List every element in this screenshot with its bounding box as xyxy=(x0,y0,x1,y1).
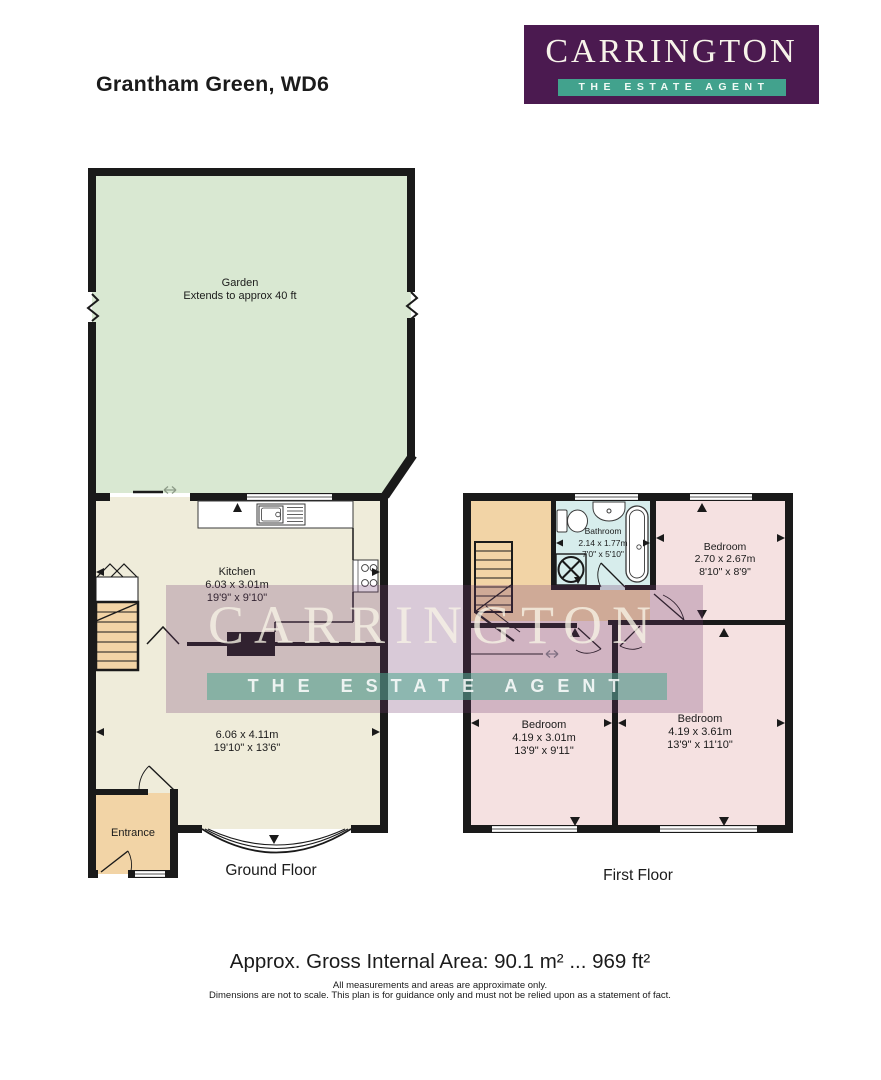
page-title: Grantham Green, WD6 xyxy=(96,72,329,97)
ground-floor-plan xyxy=(88,493,388,878)
room-name: Kitchen xyxy=(205,566,269,579)
window xyxy=(660,825,757,833)
bathroom-label: Bathroom 2.14 x 1.77m 7'0" x 5'10" xyxy=(578,526,627,561)
floor-plan-drawing xyxy=(0,0,881,1080)
bay-window-icon xyxy=(202,829,351,853)
room-size-metric: 4.19 x 3.01m xyxy=(512,732,576,745)
floorplan-page: { "page": { "title": "Grantham Green, WD… xyxy=(0,0,881,1080)
bedroom-right-label: Bedroom 4.19 x 3.61m 13'9" x 11'10" xyxy=(667,713,733,752)
room-name: Bedroom xyxy=(695,541,756,553)
ground-floor-caption: Ground Floor xyxy=(225,862,316,879)
logo-wordmark: CARRINGTON xyxy=(524,34,819,70)
room-size-metric: 2.70 x 2.67m xyxy=(695,553,756,565)
room-name: Bedroom xyxy=(512,719,576,732)
window xyxy=(135,870,165,878)
staircase-icon xyxy=(96,564,138,670)
garden-label: Garden Extends to approx 40 ft xyxy=(183,277,296,303)
window xyxy=(690,493,752,501)
room-name: Bathroom xyxy=(578,526,627,538)
room-size-imperial: 19'9" x 9'10" xyxy=(205,592,269,605)
room-size-imperial: 8'10" x 8'9" xyxy=(695,566,756,578)
garden-name: Garden xyxy=(183,277,296,290)
garden-note: Extends to approx 40 ft xyxy=(183,290,296,303)
room-size-metric: 6.03 x 3.01m xyxy=(205,579,269,592)
carrington-logo: CARRINGTON THE ESTATE AGENT xyxy=(524,25,819,104)
room-size-imperial: 13'9" x 9'11" xyxy=(512,745,576,758)
kitchen-counter xyxy=(198,501,353,528)
kitchen-label: Kitchen 6.03 x 3.01m 19'9" x 9'10" xyxy=(205,566,269,605)
reception-label: 6.06 x 4.11m 19'10" x 13'6" xyxy=(214,729,280,755)
window xyxy=(247,493,332,501)
room-size-metric: 6.06 x 4.11m xyxy=(214,729,280,742)
room-size-imperial: 19'10" x 13'6" xyxy=(214,742,280,755)
room-size-metric: 2.14 x 1.77m xyxy=(578,538,627,550)
gross-internal-area: Approx. Gross Internal Area: 90.1 m² ...… xyxy=(230,950,650,974)
garden-area xyxy=(88,168,417,501)
bedroom-rear-label: Bedroom 2.70 x 2.67m 8'10" x 8'9" xyxy=(695,541,756,578)
room-size-imperial: 13'9" x 11'10" xyxy=(667,739,733,752)
window xyxy=(575,493,638,501)
sink-icon xyxy=(257,504,305,525)
first-floor-caption: First Floor xyxy=(603,867,673,884)
room-size-imperial: 7'0" x 5'10" xyxy=(578,549,627,561)
room-name: Entrance xyxy=(111,827,155,840)
logo-tagline: THE ESTATE AGENT xyxy=(558,79,786,96)
window xyxy=(492,825,577,833)
disclaimer-line-2: Dimensions are not to scale. This plan i… xyxy=(209,991,671,1002)
bedroom-left-label: Bedroom 4.19 x 3.01m 13'9" x 9'11" xyxy=(512,719,576,758)
room-name: Bedroom xyxy=(667,713,733,726)
hob-icon xyxy=(353,560,378,592)
entrance-label: Entrance xyxy=(111,827,155,840)
room-size-metric: 4.19 x 3.61m xyxy=(667,726,733,739)
